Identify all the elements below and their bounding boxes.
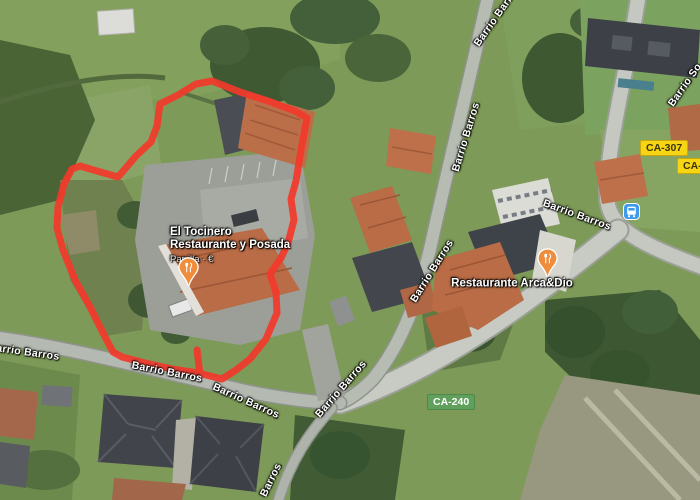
restaurant-pin-arcadio[interactable] xyxy=(536,248,559,278)
map-canvas[interactable] xyxy=(0,0,700,500)
route-badge-ca240: CA-240 xyxy=(427,394,475,410)
route-badge-ca307: CA-307 xyxy=(640,140,688,156)
poi-name-line1: El Tocinero xyxy=(170,226,290,239)
restaurant-pin-el-tocinero[interactable] xyxy=(177,257,200,287)
poi-name-line2: Restaurante y Posada xyxy=(170,239,290,252)
satellite-map[interactable]: Barrio Barros Barrio Barros Barrio Barro… xyxy=(0,0,700,500)
route-badge-ca2: CA-2 xyxy=(677,158,700,174)
poi-label-arcadio[interactable]: Restaurante Arca&Dio xyxy=(451,278,573,291)
bus-stop-icon[interactable] xyxy=(623,203,640,220)
